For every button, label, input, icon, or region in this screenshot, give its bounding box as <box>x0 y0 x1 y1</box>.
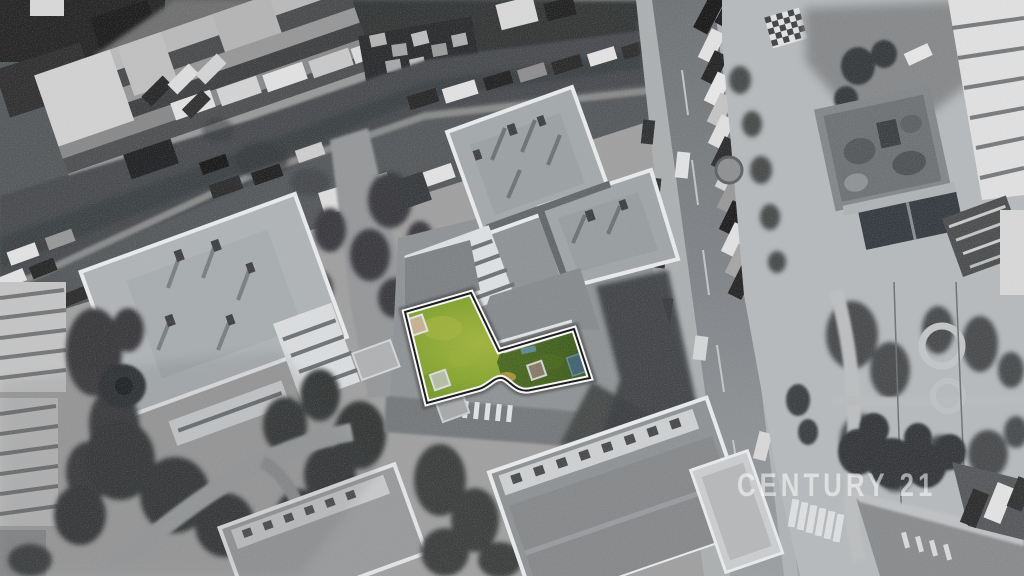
svg-text:CENTURY 21: CENTURY 21 <box>737 468 936 503</box>
